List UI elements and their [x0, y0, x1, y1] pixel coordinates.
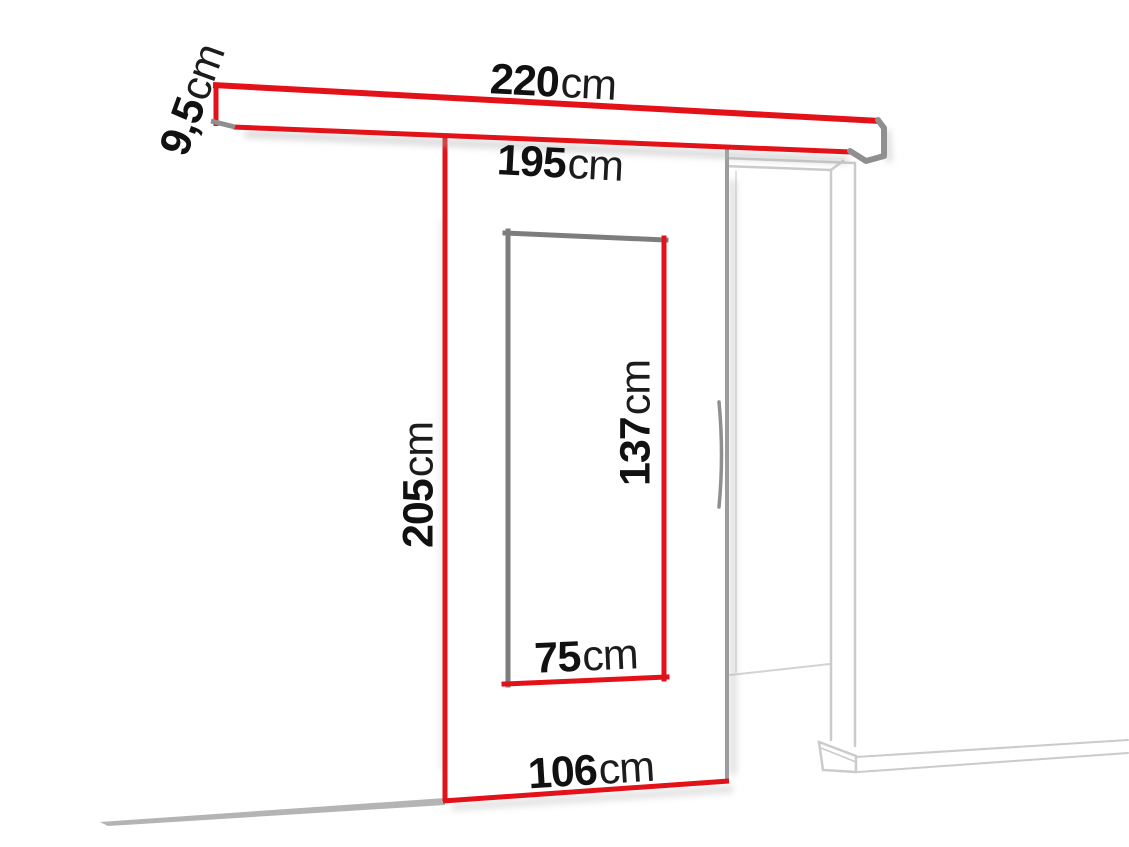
door-frame-shape: [724, 158, 1128, 772]
dim-mirror-width: 75cm: [534, 633, 639, 680]
door-panel-shape: [443, 130, 729, 801]
floor-line: [100, 798, 445, 826]
dim-door-height: 205cm: [398, 422, 441, 548]
dim-mirror-height: 137cm: [615, 360, 658, 486]
dim-door-width: 106cm: [527, 746, 655, 797]
dim-rail-length: 220cm: [489, 58, 617, 108]
dim-door-opening-width: 195cm: [496, 139, 624, 189]
door-dimension-diagram: 220cm 9,5cm 195cm 205cm 137cm 75cm 106cm: [0, 0, 1129, 847]
